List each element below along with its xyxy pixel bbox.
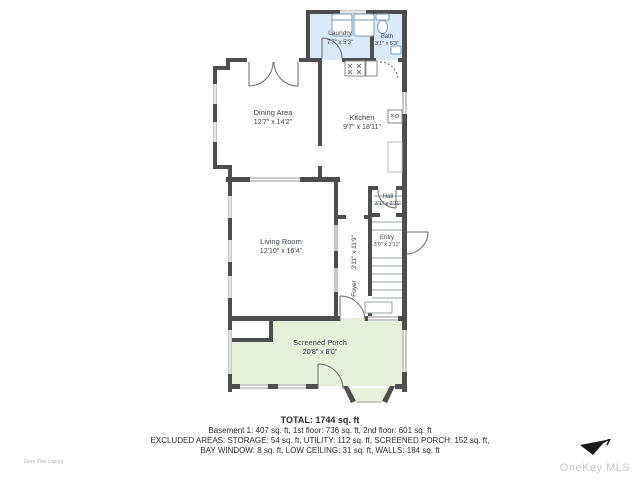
excluded-areas-line1: EXCLUDED AREAS: STORAGE: 54 sq. ft, UTIL… [0,436,640,446]
porch-steps-notch [232,321,269,338]
total-area: TOTAL: 1744 sq. ft [0,415,640,425]
hall-door [378,190,396,208]
stove-icon [345,61,377,76]
plan-caption: Floor Plan Layout [24,459,63,465]
washer-icon [332,14,352,36]
bath-door [380,62,398,80]
bath-sink-icon [391,46,401,54]
room-fills [230,12,404,401]
dryer-icon [354,14,374,36]
kitchen-counter [388,142,402,172]
dining-french-doors [249,62,298,86]
floor-plan-page: Laundry 7'7" x 5'3" Bath 3'1" x 5'3" Din… [0,0,640,480]
area-summary: TOTAL: 1744 sq. ft Basement 1: 407 sq. f… [0,415,640,456]
watermark-text: OneKey MLS [556,462,634,474]
watermark: OneKey MLS [556,439,634,474]
excluded-areas-line2: BAY WINDOW: 8 sq. ft, LOW CEILING: 31 sq… [0,446,640,456]
floor-areas: Basement 1: 407 sq. ft, 1st floor: 736 s… [0,426,640,436]
entry-door [406,232,428,254]
toilet-icon [376,14,389,34]
floor-plan-drawing [0,0,640,480]
kitchen-sink-icon [388,110,402,123]
onekey-mls-logo-icon [578,439,612,457]
living-porch-door [340,296,365,321]
